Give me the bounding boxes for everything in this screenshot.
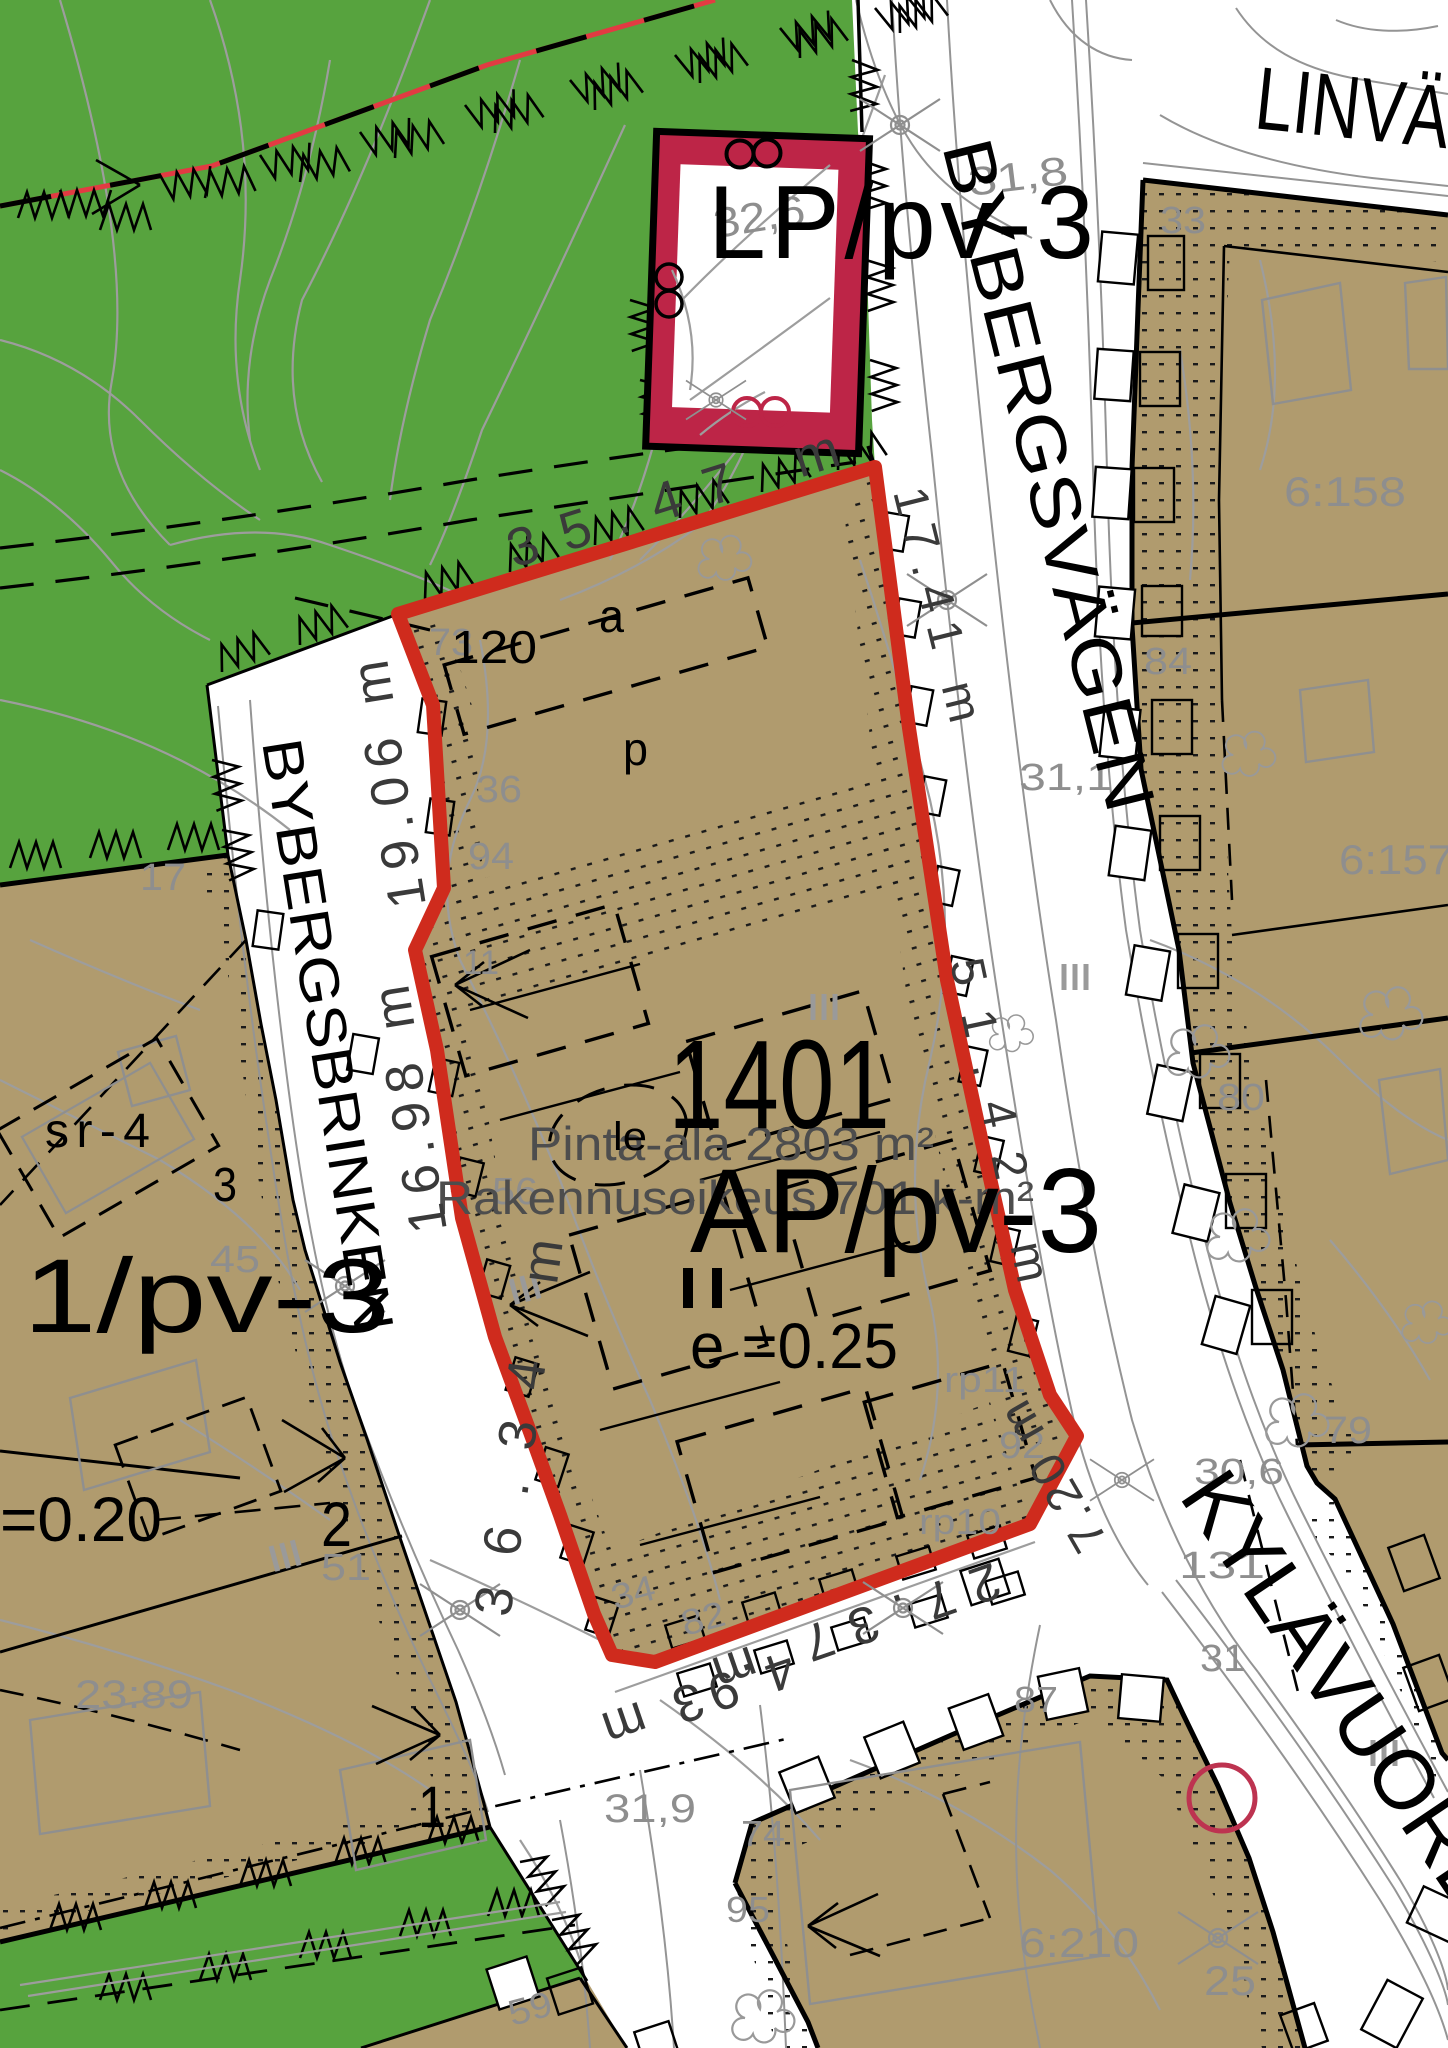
svg-text:1/pv-3: 1/pv-3 bbox=[23, 1238, 390, 1355]
svg-text:120: 120 bbox=[451, 621, 537, 673]
svg-text:25: 25 bbox=[1204, 1957, 1256, 2004]
svg-text:31,9: 31,9 bbox=[604, 1787, 696, 1831]
svg-text:AP/pv-3: AP/pv-3 bbox=[690, 1144, 1102, 1278]
svg-text:=0.20: =0.20 bbox=[0, 1485, 162, 1555]
svg-text:1401: 1401 bbox=[668, 1014, 890, 1155]
svg-text:33: 33 bbox=[1160, 200, 1206, 242]
svg-text:p: p bbox=[623, 723, 648, 775]
svg-text:6:157: 6:157 bbox=[1339, 836, 1448, 883]
svg-text:84: 84 bbox=[1144, 641, 1192, 683]
svg-text:3: 3 bbox=[213, 1159, 237, 1212]
svg-text:e =0.25: e =0.25 bbox=[690, 1310, 898, 1382]
svg-text:74: 74 bbox=[741, 1813, 785, 1854]
svg-text:80: 80 bbox=[1217, 1077, 1265, 1119]
svg-text:1: 1 bbox=[418, 1775, 446, 1840]
svg-text:95: 95 bbox=[726, 1889, 770, 1930]
svg-text:rp10: rp10 bbox=[919, 1501, 1001, 1542]
svg-text:6:158: 6:158 bbox=[1284, 468, 1406, 515]
svg-text:31: 31 bbox=[1200, 1638, 1246, 1680]
svg-text:36: 36 bbox=[476, 769, 522, 811]
svg-text:rp11: rp11 bbox=[944, 1359, 1026, 1400]
svg-text:79: 79 bbox=[1324, 1410, 1372, 1452]
svg-text:le: le bbox=[613, 1115, 647, 1159]
svg-text:17: 17 bbox=[140, 857, 186, 899]
svg-text:a: a bbox=[599, 590, 624, 642]
svg-text:6:210: 6:210 bbox=[1019, 1919, 1139, 1966]
svg-text:11: 11 bbox=[463, 944, 499, 982]
svg-text:2: 2 bbox=[321, 1490, 352, 1560]
svg-text:87: 87 bbox=[1014, 1679, 1058, 1720]
svg-text:23:89: 23:89 bbox=[75, 1673, 193, 1717]
svg-text:94: 94 bbox=[468, 836, 514, 878]
